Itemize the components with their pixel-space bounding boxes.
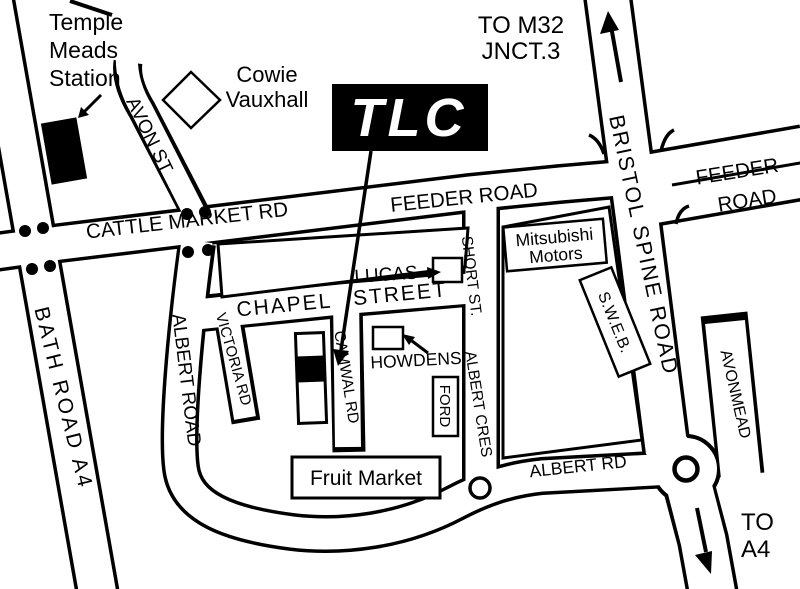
fruit-market-label: Fruit Market [310,467,422,490]
ford-label: FORD [436,385,453,428]
tlc-building-strip [295,333,326,424]
a4-label-line1: TO [741,509,774,536]
station-label-line3: Station [49,65,121,91]
mini-roundabout [470,478,490,498]
cowie-label-line1: Cowie [236,62,297,87]
station-label-line1: Temple [49,9,123,35]
a4-label-line2: A4 [741,536,770,563]
lucas-label: LUCAS [354,262,419,287]
tlc-location-map: CATTLE MARKET RD FEEDER ROAD FEEDER ROAD… [0,0,800,589]
station-label-line2: Meads [49,37,118,63]
roundabout-island [675,458,698,481]
tlc-logo-text: TLC [351,88,468,148]
m32-label-line2: JNCT.3 [482,38,561,65]
tlc-building-black-unit [296,356,325,383]
cowie-label-line2: Vauxhall [226,87,309,112]
m32-label-line1: TO M32 [478,12,564,39]
howdens-building [373,327,403,349]
